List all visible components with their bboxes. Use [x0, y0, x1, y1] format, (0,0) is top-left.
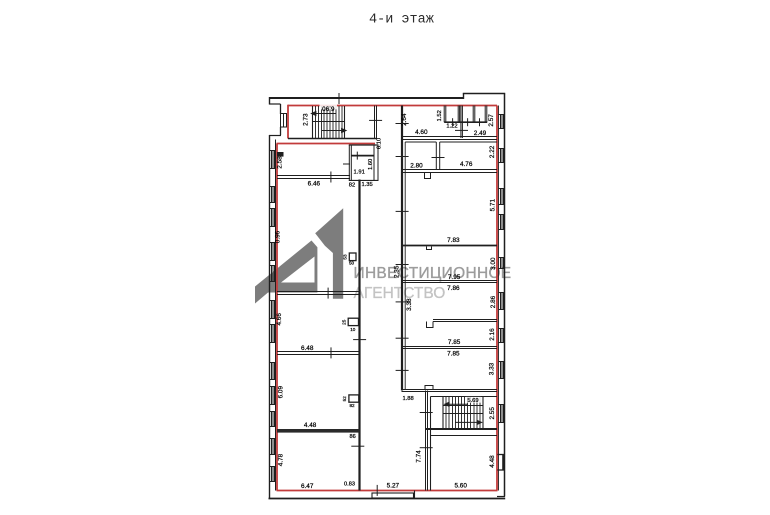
svg-text:6.10: 6.10: [377, 138, 383, 149]
svg-text:6.90: 6.90: [322, 104, 335, 111]
svg-text:1.52: 1.52: [437, 110, 443, 121]
svg-text:6.47: 6.47: [301, 483, 314, 490]
svg-text:1.22: 1.22: [446, 124, 457, 130]
svg-text:50: 50: [349, 261, 355, 266]
svg-text:1.91: 1.91: [354, 169, 365, 175]
svg-text:0.83: 0.83: [344, 482, 355, 488]
svg-text:2.58: 2.58: [276, 156, 283, 169]
svg-text:2.49: 2.49: [474, 130, 487, 137]
svg-text:4.60: 4.60: [415, 129, 428, 136]
svg-text:АГЕНТСТВО: АГЕНТСТВО: [354, 285, 446, 302]
svg-text:86: 86: [349, 434, 355, 440]
svg-text:6.46: 6.46: [308, 181, 321, 188]
svg-text:2.22: 2.22: [489, 145, 496, 158]
svg-text:82: 82: [349, 183, 355, 189]
svg-text:2.35: 2.35: [394, 265, 401, 278]
svg-text:5.69: 5.69: [467, 398, 478, 404]
svg-text:1.60: 1.60: [368, 159, 374, 170]
svg-text:4.66: 4.66: [276, 313, 283, 326]
svg-text:25: 25: [341, 319, 346, 325]
svg-text:2.80: 2.80: [410, 162, 423, 169]
svg-text:7.83: 7.83: [447, 237, 460, 244]
svg-text:2.73: 2.73: [303, 113, 310, 126]
svg-text:2.16: 2.16: [489, 328, 496, 341]
svg-text:2.55: 2.55: [489, 407, 496, 420]
svg-text:6.09: 6.09: [278, 386, 285, 399]
svg-text:0.96: 0.96: [275, 230, 282, 243]
svg-text:4-и этаж: 4-и этаж: [369, 13, 435, 28]
svg-text:5.71: 5.71: [489, 199, 496, 212]
svg-text:2.57: 2.57: [488, 114, 495, 127]
svg-text:5.60: 5.60: [454, 483, 467, 490]
svg-text:53: 53: [343, 254, 348, 260]
svg-text:3.00: 3.00: [490, 257, 497, 270]
svg-text:5.27: 5.27: [387, 483, 400, 490]
svg-text:6.48: 6.48: [301, 345, 314, 352]
svg-text:4.76: 4.76: [460, 161, 473, 168]
svg-text:2.86: 2.86: [490, 295, 497, 308]
svg-text:52: 52: [342, 396, 347, 402]
svg-text:3.33: 3.33: [488, 362, 495, 375]
svg-text:4.78: 4.78: [278, 453, 285, 466]
svg-text:7.86: 7.86: [447, 285, 460, 292]
svg-text:4.48: 4.48: [489, 455, 496, 468]
svg-text:10: 10: [350, 327, 356, 332]
svg-text:ИНВЕСТИЦИОННОЕ: ИНВЕСТИЦИОННОЕ: [354, 265, 512, 282]
svg-text:4.48: 4.48: [304, 422, 317, 429]
svg-text:7.85: 7.85: [447, 350, 460, 357]
svg-text:1.88: 1.88: [402, 396, 413, 402]
svg-text:7.74: 7.74: [416, 450, 423, 463]
svg-text:7.85: 7.85: [448, 339, 461, 346]
svg-text:3.38: 3.38: [406, 298, 413, 311]
svg-text:1.35: 1.35: [361, 182, 372, 188]
svg-text:82: 82: [349, 403, 355, 408]
